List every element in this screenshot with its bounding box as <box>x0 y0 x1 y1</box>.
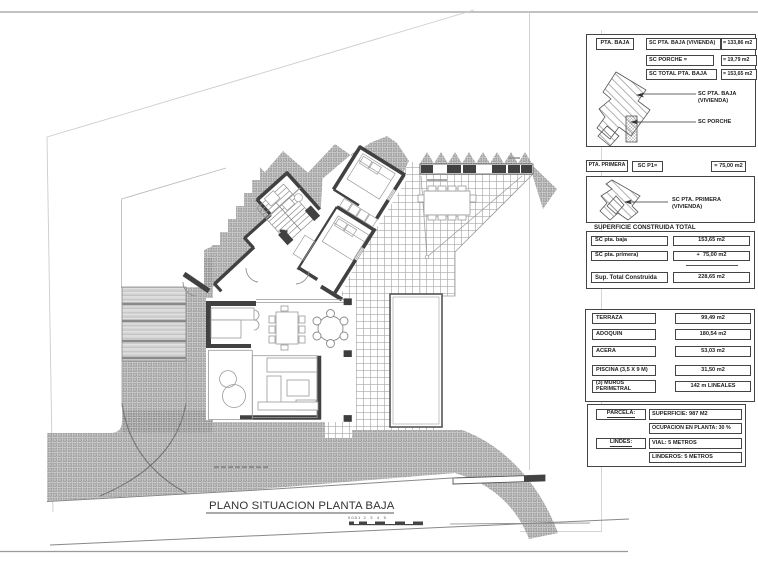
svg-text:0 0.5 1 2 3 4 5: 0 0.5 1 2 3 4 5 <box>348 515 387 520</box>
svg-text:PLANO SITUACION PLANTA BAJA: PLANO SITUACION PLANTA BAJA <box>209 500 395 512</box>
